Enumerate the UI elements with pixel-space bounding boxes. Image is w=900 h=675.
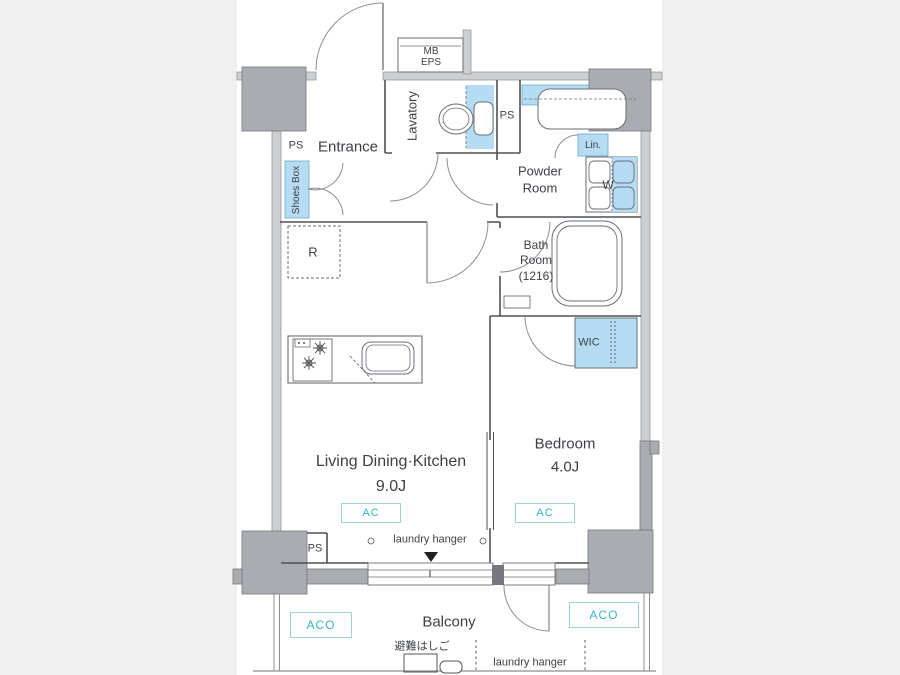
ps-balcony-label: PS <box>308 544 323 555</box>
column-bottom-right <box>588 530 653 593</box>
kitchen-sink <box>362 342 414 374</box>
bath-room-label-line3: (1216) <box>519 270 554 282</box>
ldk-size-label: 9.0J <box>376 479 406 495</box>
aco-badge-right: ACO <box>569 602 639 628</box>
ps-entrance-label: PS <box>289 141 304 152</box>
ac-badge-bedroom: AC <box>515 503 575 523</box>
wic-label: WIC <box>578 338 599 349</box>
laundry-hanger-ldk-label: laundry hanger <box>393 535 466 546</box>
bedroom-name-label: Bedroom <box>535 437 596 452</box>
evacuation-ladder-label: 避難はしご <box>395 642 450 653</box>
floor-plan-canvas: MB EPS Lavatory PS Powder Room Lin. W En… <box>0 0 900 675</box>
ac-badge-ldk: AC <box>341 503 401 523</box>
aco-badge-left: ACO <box>290 612 352 638</box>
vanity-basin <box>524 89 636 129</box>
balcony-windows <box>368 563 555 585</box>
lavatory-label: Lavatory <box>406 91 419 141</box>
ldk-name-label: Living Dining·Kitchen <box>316 454 466 470</box>
floor-plan-drawing <box>0 0 900 675</box>
bath-step <box>504 296 530 308</box>
balcony-label: Balcony <box>422 615 475 630</box>
powder-room-label-line2: Room <box>523 182 558 195</box>
washer-label: W <box>602 179 613 191</box>
window-center-post <box>492 565 504 585</box>
bedroom-window <box>503 563 555 585</box>
entrance-label: Entrance <box>318 140 378 155</box>
bath-room-label-line2: Room <box>520 254 552 266</box>
shoes-box-label: Shoes Box <box>292 166 302 214</box>
bedroom-size-label: 4.0J <box>551 460 579 475</box>
refrigerator-label: R <box>308 246 317 259</box>
bath-room-label-line1: Bath <box>524 239 549 251</box>
linen-label: Lin. <box>585 141 601 151</box>
mb-eps-stub-wall <box>463 30 471 74</box>
drain-cover <box>440 661 462 673</box>
ps-lavatory-label: PS <box>500 111 515 122</box>
column-top-left <box>242 67 306 131</box>
mb-label: MB <box>424 47 439 57</box>
eps-label: EPS <box>421 58 441 68</box>
powder-room-label-line1: Powder <box>518 165 562 178</box>
laundry-hanger-balcony-label: laundry hanger <box>493 658 566 669</box>
